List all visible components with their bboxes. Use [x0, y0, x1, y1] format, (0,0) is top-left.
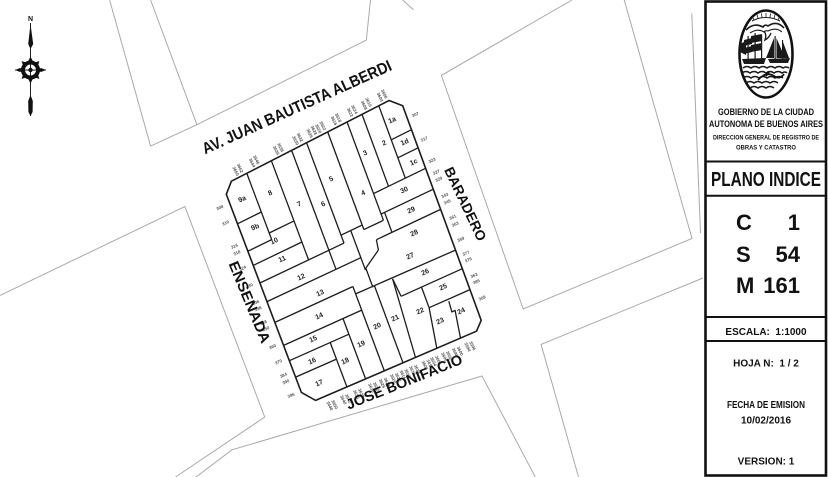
- svg-text:GOBIERNO DE LA CIUDAD: GOBIERNO DE LA CIUDAD: [718, 107, 814, 117]
- svg-text:VERSION: 1: VERSION: 1: [738, 457, 795, 468]
- svg-text:DIRECCION GENERAL DE REGISTRO: DIRECCION GENERAL DE REGISTRO DE: [713, 135, 819, 142]
- svg-text:AUTONOMA DE BUENOS AIRES: AUTONOMA DE BUENOS AIRES: [709, 119, 823, 129]
- svg-text:N: N: [28, 16, 33, 23]
- svg-text:M: M: [736, 273, 754, 298]
- svg-text:OBRAS Y CATASTRO: OBRAS Y CATASTRO: [736, 145, 796, 152]
- svg-text:HOJA N: 1 / 2: HOJA N: 1 / 2: [733, 359, 799, 370]
- svg-text:54: 54: [776, 242, 801, 267]
- svg-text:S: S: [736, 242, 751, 267]
- svg-text:C: C: [736, 210, 752, 235]
- svg-text:ESCALA: 1:1000: ESCALA: 1:1000: [725, 327, 807, 338]
- svg-text:1: 1: [788, 210, 800, 235]
- svg-text:10/02/2016: 10/02/2016: [741, 416, 791, 427]
- svg-text:FECHA DE EMISION: FECHA DE EMISION: [727, 400, 805, 411]
- svg-text:PLANO INDICE: PLANO INDICE: [711, 169, 821, 191]
- svg-text:161: 161: [763, 273, 800, 298]
